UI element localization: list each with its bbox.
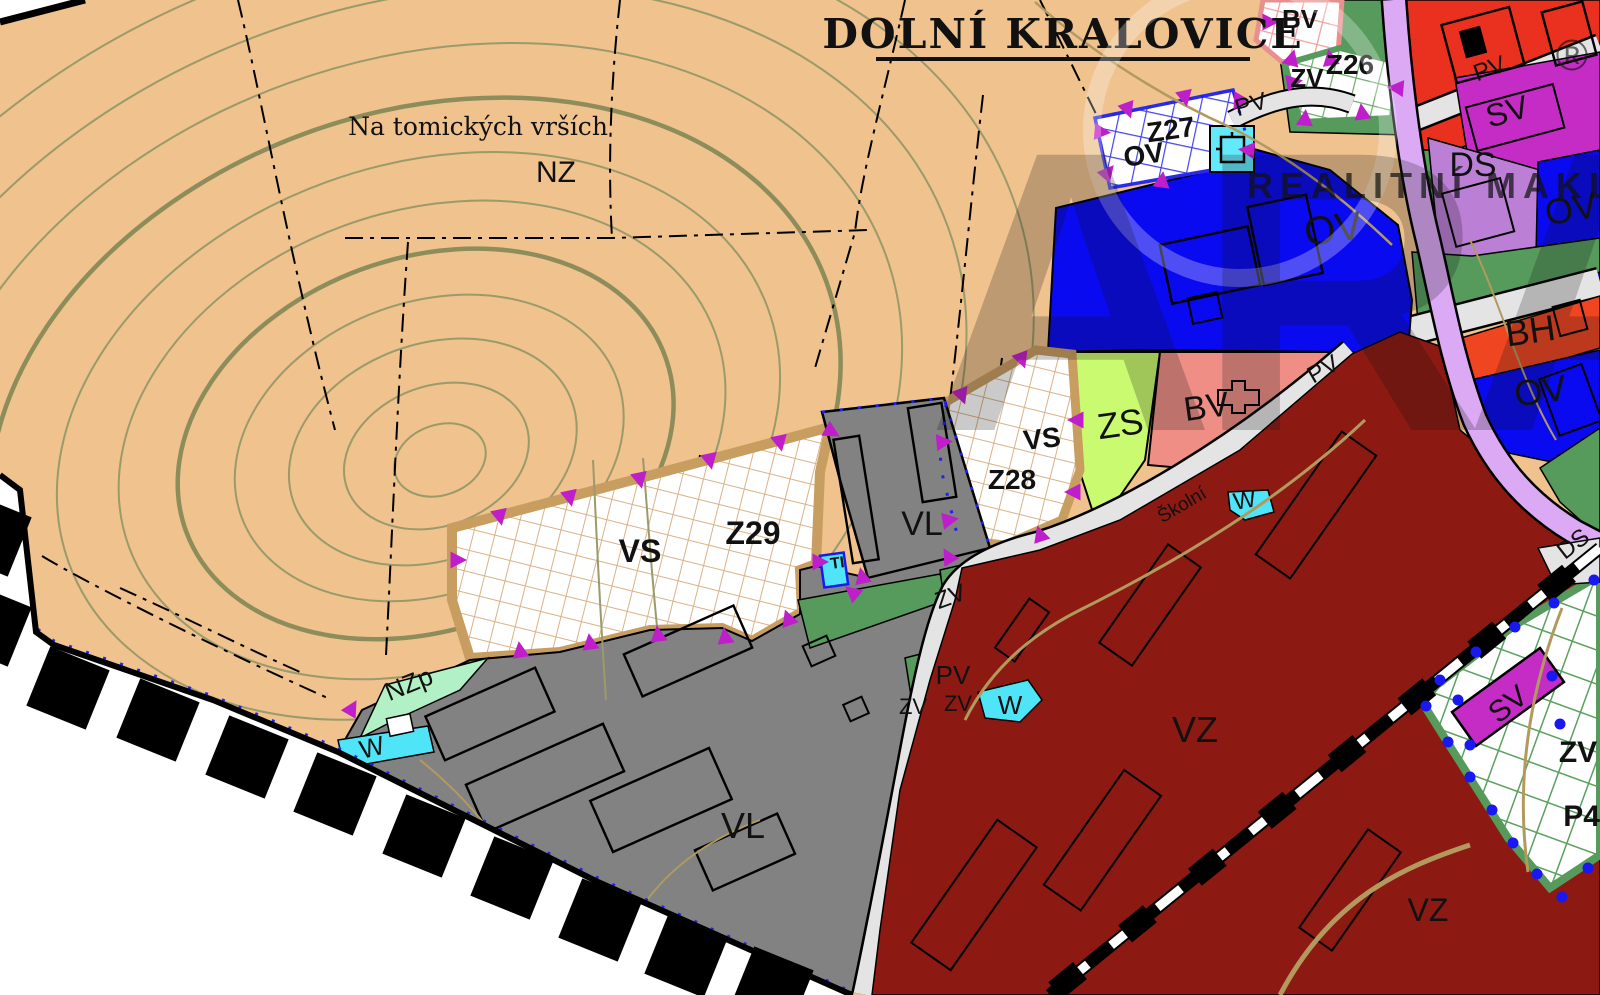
map-title: DOLNÍ KRALOVICE bbox=[822, 9, 1303, 58]
map-title-group: DOLNÍ KRALOVICE bbox=[822, 9, 1303, 59]
zoning-map: Na tomických vrších NZ NZp VS Z29 VS Z28… bbox=[0, 0, 1600, 995]
label-vz-se: VZ bbox=[1408, 892, 1449, 928]
label-zv-se: ZV bbox=[1559, 736, 1597, 769]
small-building-white bbox=[386, 714, 413, 737]
watermark-brand: ARA bbox=[927, 68, 1600, 515]
label-zv-strip2: ZV bbox=[899, 694, 927, 719]
watermark-subtitle: REALITNÍ MAKLÉŘI bbox=[1247, 164, 1600, 206]
label-w-pond-south: W bbox=[998, 690, 1023, 720]
label-ti: TI bbox=[829, 554, 845, 573]
label-zv-strip3: ZV bbox=[944, 691, 972, 716]
label-vs-z29: VS bbox=[619, 533, 662, 569]
label-nz: NZ bbox=[536, 156, 576, 189]
label-vz-main: VZ bbox=[1172, 709, 1218, 750]
label-vl-main: VL bbox=[721, 805, 765, 846]
label-p43: P43 bbox=[1563, 800, 1600, 833]
map-canvas: Na tomických vrších NZ NZp VS Z29 VS Z28… bbox=[0, 0, 1600, 995]
label-pv-south: PV bbox=[936, 660, 971, 690]
label-place-name: Na tomických vrších bbox=[348, 112, 608, 141]
watermark-registered: ® bbox=[1556, 31, 1588, 80]
watermark: ARA ® REALITNÍ MAKLÉŘI bbox=[927, 0, 1600, 515]
label-z29: Z29 bbox=[725, 515, 780, 551]
